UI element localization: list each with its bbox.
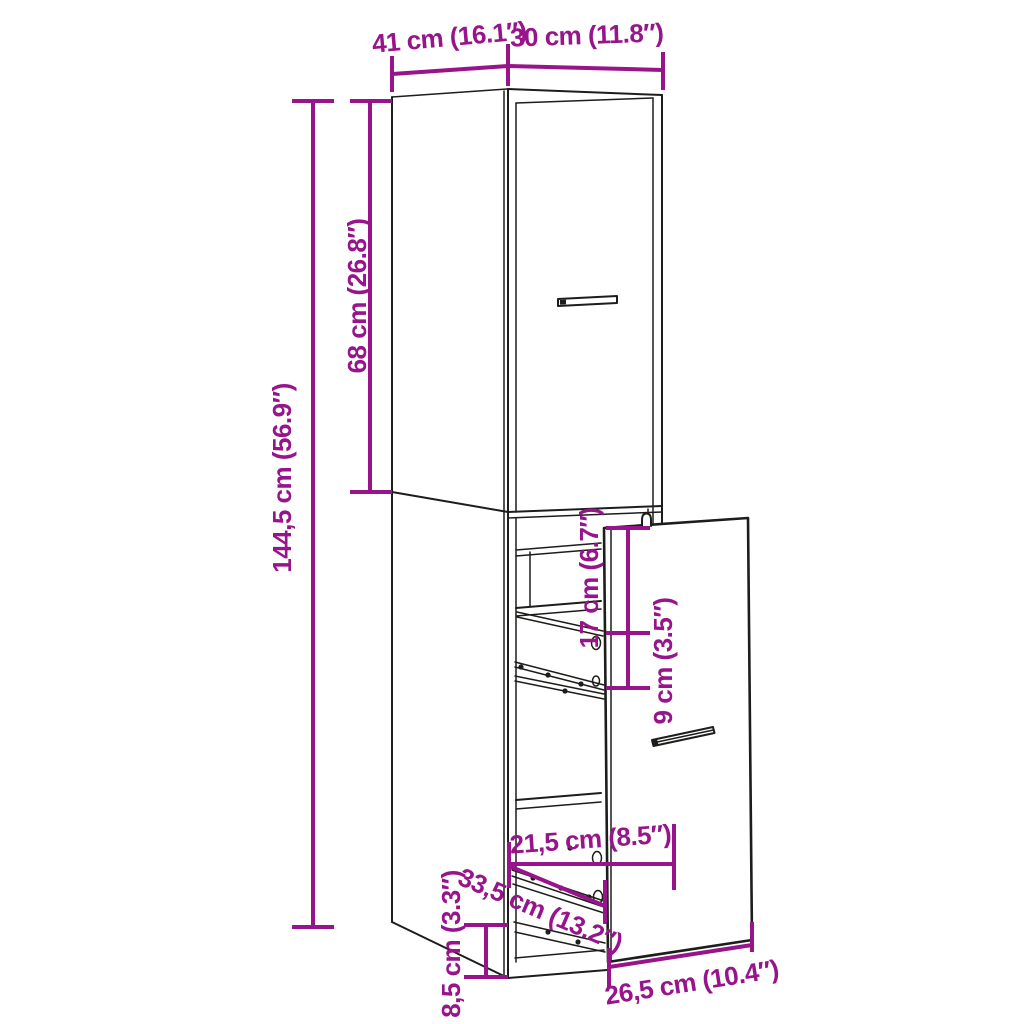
mid-drawer-slide-rails <box>515 662 604 699</box>
bottom-front-edge <box>508 970 607 978</box>
dim-pullout-extension-label: 33,5 cm (13.2″) <box>454 862 627 958</box>
dim-drawer-gap-label: 9 cm (3.5″) <box>648 598 678 725</box>
dim-top-width-label: 30 cm (11.8″) <box>510 17 664 52</box>
front-top-edge <box>508 89 662 95</box>
dim-door-height-label: 68 cm (26.8″) <box>342 219 372 374</box>
cabinet-dimension-drawing: 41 cm (16.1″) 30 cm (11.8″) 144,5 cm (56… <box>0 0 1024 1024</box>
screw-dot <box>578 681 583 686</box>
dim-top-depth-line <box>392 66 508 74</box>
screw-dot <box>562 688 567 693</box>
dimension-diagram-canvas: 41 cm (16.1″) 30 cm (11.8″) 144,5 cm (56… <box>0 0 1024 1024</box>
slide-rail <box>515 681 604 699</box>
dim-base-height-label: 8,5 cm (3.3″) <box>436 870 466 1018</box>
screw-dot <box>545 672 550 677</box>
door-handle-cap <box>560 300 566 305</box>
dim-pullout-extension: 33,5 cm (13.2″) <box>454 862 627 958</box>
door-handle-bar <box>558 296 617 306</box>
slide-hook-bracket <box>642 514 651 529</box>
left-panel-seam <box>392 492 508 512</box>
dowel-hole <box>593 676 600 686</box>
slide-rail <box>515 662 604 685</box>
dim-top-depth: 41 cm (16.1″) <box>371 15 528 92</box>
dim-top-width-line <box>508 66 663 70</box>
dim-top-drawer-clearance-label: 17 cm (6.7″) <box>574 508 604 649</box>
shelf-2-front-edge <box>516 793 601 800</box>
door-top-edge <box>516 98 653 103</box>
dim-top-depth-label: 41 cm (16.1″) <box>371 15 528 58</box>
floor-front-edge <box>515 950 604 958</box>
door-handle <box>558 296 617 306</box>
dim-total-height-label: 144,5 cm (56.9″) <box>267 383 297 572</box>
shelf-2-bottom-edge <box>516 802 601 809</box>
left-panel-top-edge <box>392 89 507 97</box>
screw-dot <box>518 664 523 669</box>
dim-top-width: 30 cm (11.8″) <box>508 17 664 90</box>
dim-door-height: 68 cm (26.8″) <box>342 101 392 492</box>
screw-dot <box>545 929 550 934</box>
dim-total-height: 144,5 cm (56.9″) <box>267 101 334 927</box>
